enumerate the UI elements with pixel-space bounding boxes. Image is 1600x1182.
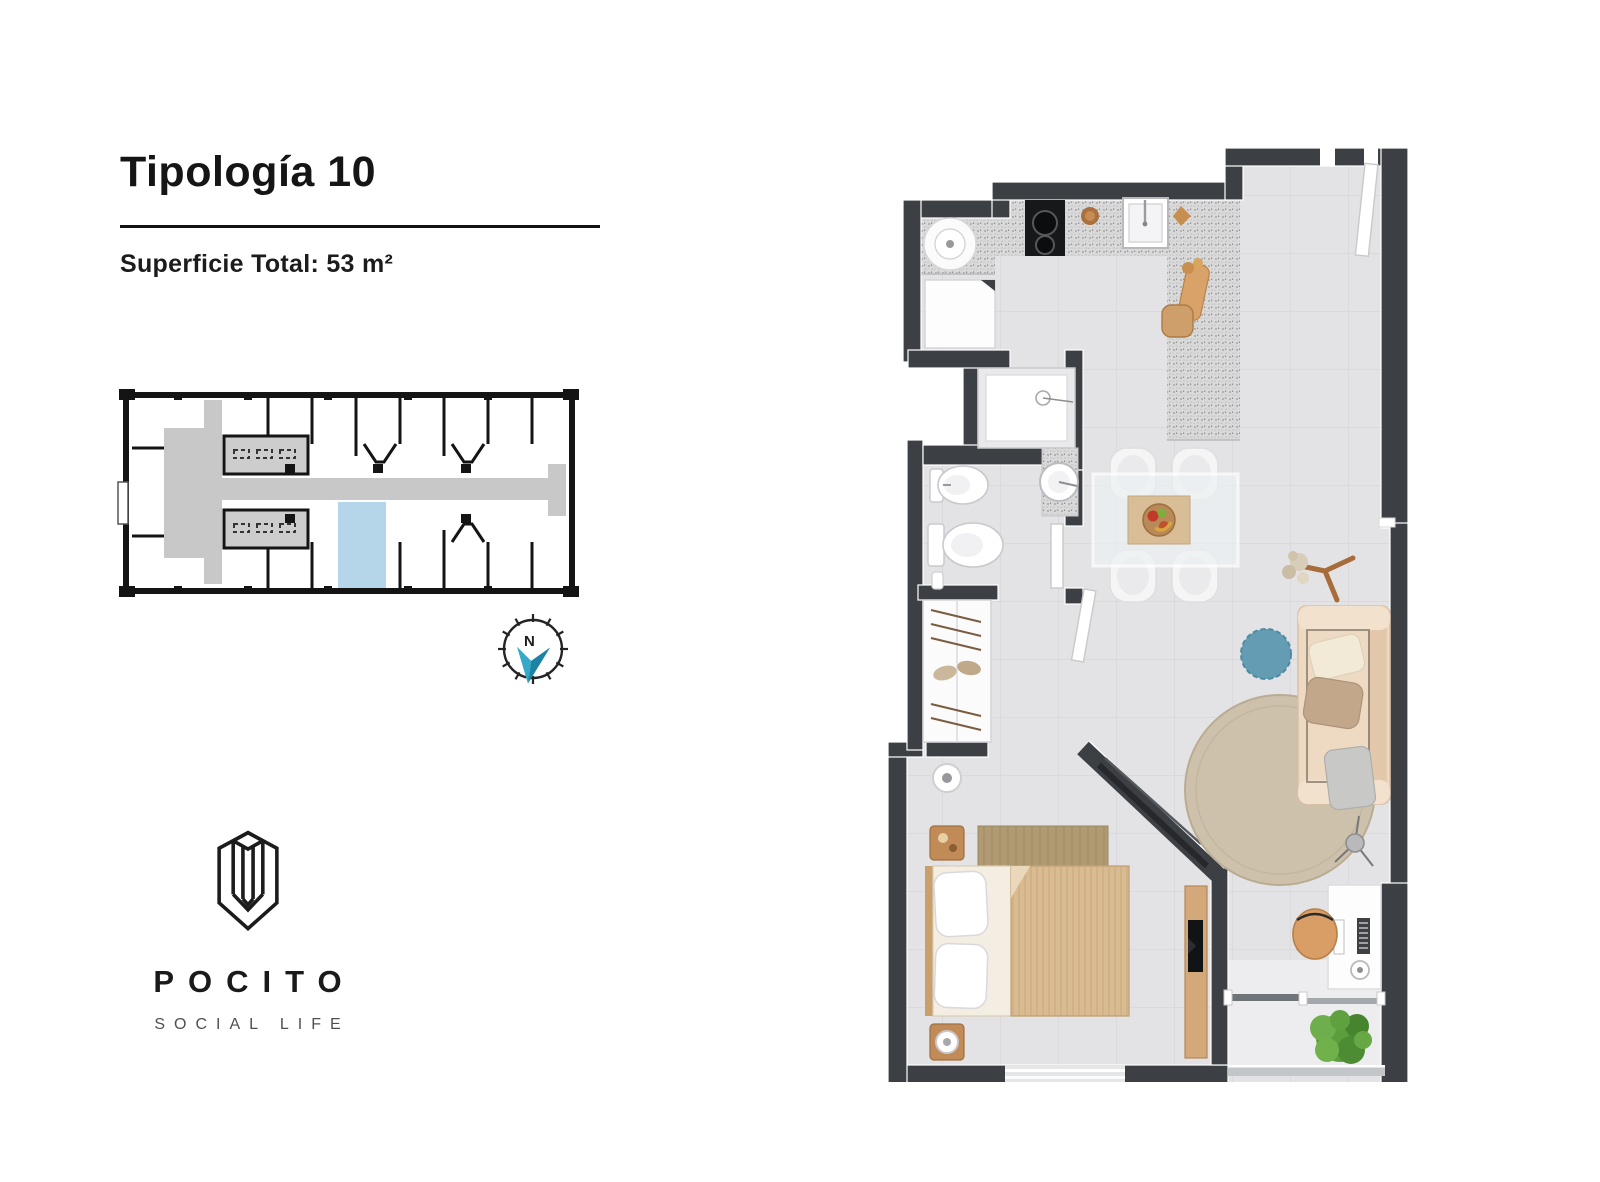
tv-sideboard-icon (1185, 886, 1207, 1058)
sofa-icon (1298, 606, 1390, 811)
floorplan-sheet: Tipología 10 Superficie Total: 53 m² (0, 0, 1600, 1182)
facade-notch (885, 362, 963, 445)
bidet-icon (930, 466, 988, 504)
hall-light-icon (933, 764, 961, 792)
fruit-bowl-icon (1143, 504, 1175, 536)
desk-chair-icon (1293, 909, 1337, 959)
nightstand-top (930, 826, 964, 860)
closet-icon (923, 600, 991, 742)
pocito-logo-icon (209, 824, 287, 938)
kitchen-cabinet (925, 280, 995, 348)
bar-stool-icon (1162, 305, 1193, 337)
bed-icon (925, 866, 1129, 1016)
bedroom-window (1005, 1065, 1125, 1082)
page-title: Tipología 10 (120, 148, 620, 197)
building-keyplan (116, 386, 582, 600)
keyplan-highlighted-unit (338, 502, 386, 588)
nightstand-bottom (930, 1024, 964, 1060)
apartment-floorplan (885, 138, 1408, 1082)
washbasin-icon (1040, 448, 1078, 516)
brand-name: POCITO (114, 964, 395, 1000)
total-area-text: Superficie Total: 53 m² (120, 250, 620, 279)
brand-tagline: SOCIAL LIFE (109, 1016, 395, 1034)
balcony-plant-icon (1310, 1010, 1372, 1064)
brand-block: POCITO SOCIAL LIFE (100, 824, 395, 1034)
right-wall-sill (1379, 518, 1395, 527)
balcony-parapet (1228, 1065, 1385, 1076)
pouf-icon (1241, 629, 1291, 679)
title-block: Tipología 10 Superficie Total: 53 m² (120, 148, 620, 279)
cooktop-icon (1025, 200, 1065, 256)
compass-north-label: N (524, 633, 535, 650)
kitchen-sink-icon (1123, 198, 1168, 248)
bathroom-door (1051, 524, 1063, 588)
washing-machine-icon (924, 218, 976, 270)
shower-icon (978, 368, 1075, 448)
title-divider (120, 225, 600, 228)
compass: N (494, 608, 572, 692)
